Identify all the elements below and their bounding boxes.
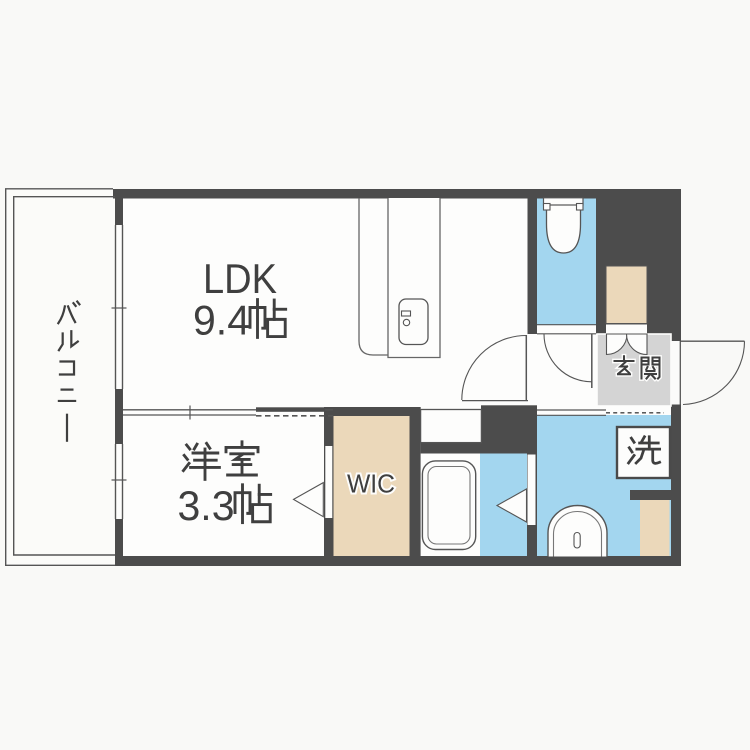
svg-text:3.3: 3.3 bbox=[178, 482, 235, 529]
svg-text:9.4: 9.4 bbox=[193, 297, 250, 344]
svg-text:LDK: LDK bbox=[203, 255, 277, 302]
svg-text:WIC: WIC bbox=[347, 469, 395, 499]
